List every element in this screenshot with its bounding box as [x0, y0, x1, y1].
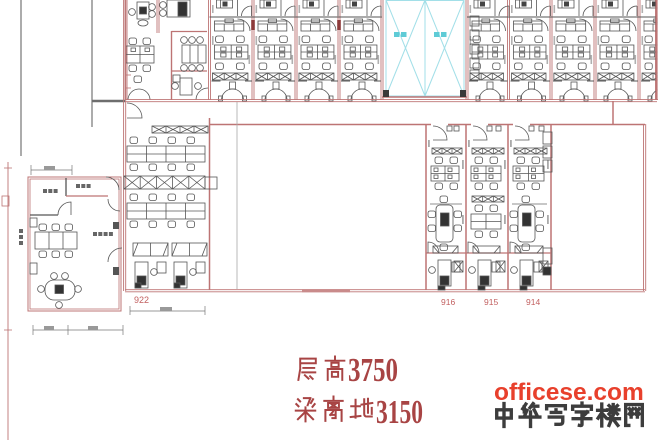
svg-text:916: 916: [441, 297, 455, 307]
svg-text:3750: 3750: [348, 352, 398, 389]
svg-text:3150: 3150: [376, 394, 423, 431]
svg-text:915: 915: [484, 297, 498, 307]
svg-text:914: 914: [526, 297, 540, 307]
svg-text:officese.com: officese.com: [494, 379, 644, 406]
svg-text:922: 922: [134, 295, 149, 305]
